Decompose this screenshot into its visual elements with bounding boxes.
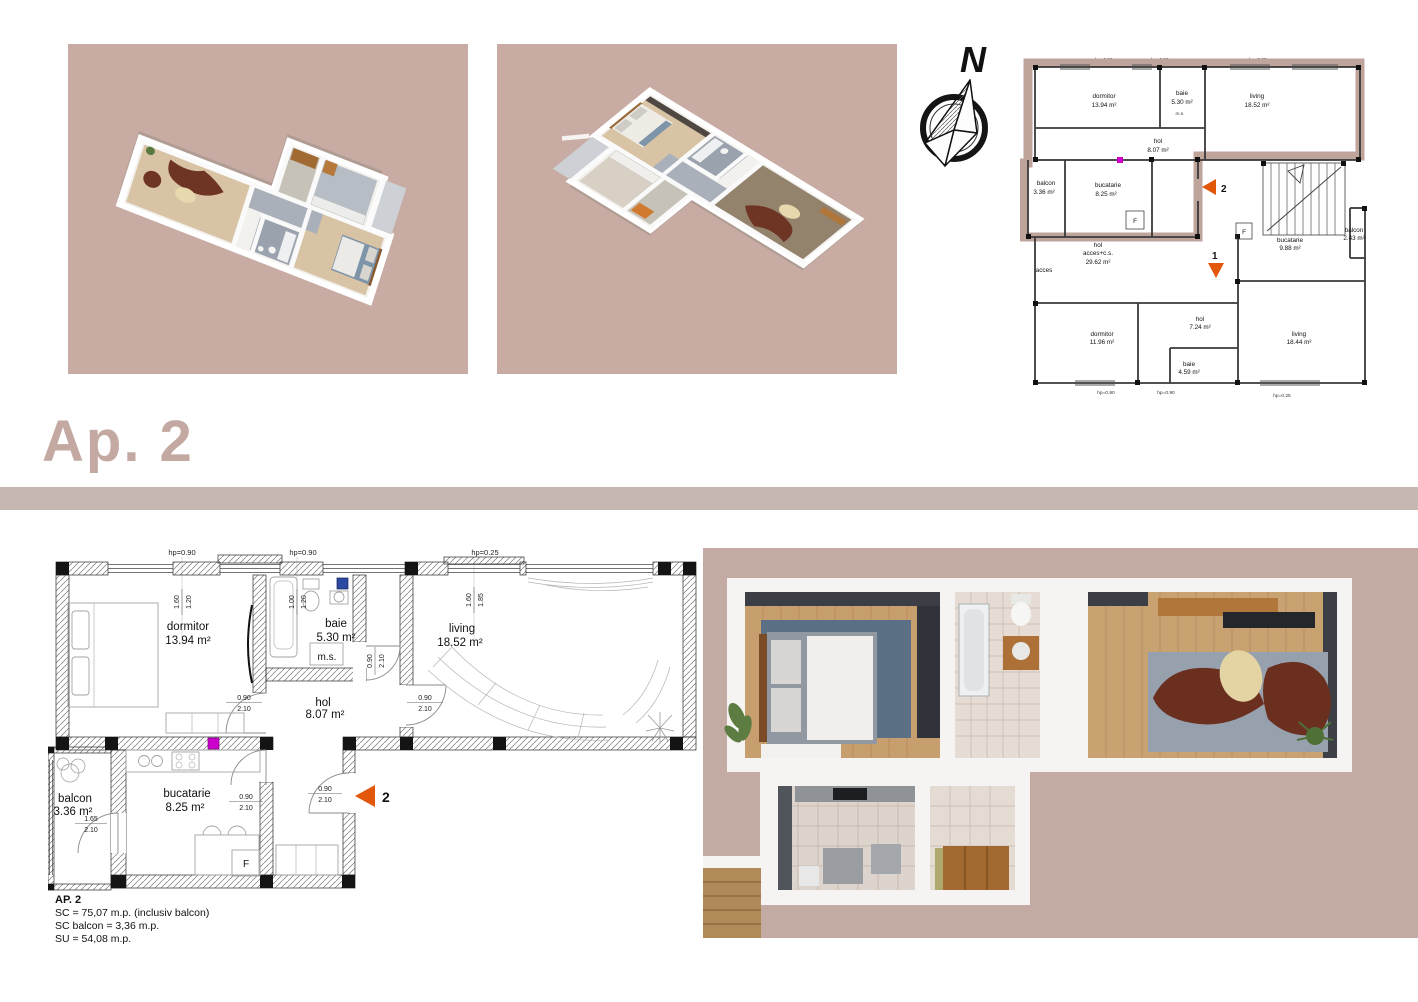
compass-north-label: N <box>960 39 987 80</box>
balcony-walls <box>48 747 111 890</box>
ap2-mini-dormitor-label: dormitor <box>1092 93 1115 100</box>
svg-text:2.10: 2.10 <box>379 654 386 668</box>
ap1-living-label: living <box>1292 331 1307 338</box>
washing-machine-label: m.s. <box>318 652 337 663</box>
svg-text:2.43 m²: 2.43 m² <box>1343 235 1364 242</box>
svg-text:8.25 m²: 8.25 m² <box>166 802 205 814</box>
bucatarie-label: bucatarie <box>163 788 210 800</box>
balcony-door-dim: 1.652.10 <box>75 816 107 834</box>
living-window-dim: 1.601.85 <box>466 587 485 613</box>
ap1-hol-label: hol <box>1196 316 1204 323</box>
ap2-mini-balcon-label: balcon <box>1037 180 1056 187</box>
render3-stove <box>833 788 867 800</box>
ap1-bucatarie-label: bucatarie <box>1277 237 1303 244</box>
magenta-marker <box>208 738 219 749</box>
svg-text:1.20: 1.20 <box>186 595 193 609</box>
ap2-mini-ms-label: m.s. <box>1175 112 1184 117</box>
ap2-mini-hol-label: hol <box>1154 138 1162 145</box>
svg-text:0.90: 0.90 <box>239 794 253 801</box>
fridge-label: F <box>243 859 249 870</box>
ap1-baie-label: baie <box>1183 361 1195 368</box>
site-hp-label: hp=0.90 <box>1157 390 1175 396</box>
svg-text:1.60: 1.60 <box>174 595 181 609</box>
ap1-entrance-arrow <box>1208 263 1224 278</box>
svg-text:2.10: 2.10 <box>318 797 332 804</box>
render3-wardrobe <box>943 846 1009 890</box>
svg-text:1.20: 1.20 <box>301 595 308 609</box>
svg-text:0.90: 0.90 <box>418 695 432 702</box>
svg-text:acces+c.s.: acces+c.s. <box>1083 250 1113 257</box>
exterior-walls <box>56 562 696 888</box>
svg-text:13.94 m²: 13.94 m² <box>1092 102 1117 109</box>
ap2-highlight-outline <box>1024 63 1360 237</box>
ap1-dormitor-label: dormitor <box>1090 331 1113 338</box>
baie-label: baie <box>325 618 347 630</box>
render3-bathroom <box>955 592 1040 758</box>
svg-text:2.10: 2.10 <box>237 706 251 713</box>
svg-text:4.59 m²: 4.59 m² <box>1178 369 1199 376</box>
render-3d-iso-1 <box>68 44 468 374</box>
ap2-mini-fridge-label: F <box>1133 218 1137 225</box>
site-plan: hp=0.90 hp=0.90 hp=0.25 dormitor 13.94 m… <box>1020 53 1392 418</box>
ap1-fridge-label: F <box>1242 229 1246 236</box>
render3-hallway <box>930 786 1015 890</box>
svg-text:18.52 m²: 18.52 m² <box>1245 102 1270 109</box>
svg-text:2.10: 2.10 <box>239 805 253 812</box>
render3-kitchen <box>778 786 915 890</box>
ap2-mini-magenta-marker <box>1117 157 1123 163</box>
detail-hp-label: hp=0.25 <box>471 548 498 557</box>
living-label: living <box>449 623 475 635</box>
entrance-arrow <box>355 785 375 807</box>
balcony-plant-icon <box>57 758 85 782</box>
stairwell <box>1263 163 1345 235</box>
detail-floor-plan: hp=0.90 hp=0.90 hp=0.25 <box>48 545 698 905</box>
dormitor-window-dim: 1.601.20 <box>174 589 193 615</box>
detail-hp-label: hp=0.90 <box>168 548 195 557</box>
svg-text:0.90: 0.90 <box>367 654 374 668</box>
site-hp-label: hp=0.25 <box>1273 393 1291 399</box>
ap1-hol-acces-label: hol <box>1094 242 1102 249</box>
summary-sc-balcon: SC balcon = 3,36 m.p. <box>55 920 209 933</box>
svg-text:7.24 m²: 7.24 m² <box>1189 324 1210 331</box>
svg-text:9.88 m²: 9.88 m² <box>1279 245 1300 252</box>
ap2-entrance-number: 2 <box>1221 184 1227 195</box>
svg-text:0.90: 0.90 <box>318 786 332 793</box>
svg-text:8.25 m²: 8.25 m² <box>1095 191 1116 198</box>
svg-text:18.52 m²: 18.52 m² <box>437 637 483 649</box>
svg-text:11.96 m²: 11.96 m² <box>1090 339 1114 346</box>
divider-band <box>0 487 1418 510</box>
blue-marker <box>337 578 348 589</box>
svg-text:3.36 m²: 3.36 m² <box>1033 189 1054 196</box>
summary-sc: SC = 75,07 m.p. (inclusiv balcon) <box>55 907 209 920</box>
dormitor-label: dormitor <box>167 621 209 633</box>
summary-heading: AP. 2 <box>55 894 209 907</box>
ap2-entrance-arrow <box>1202 179 1216 195</box>
ap1-balcon-label: balcon <box>1345 227 1364 234</box>
svg-text:1.85: 1.85 <box>478 593 485 607</box>
page-title: Ap. 2 <box>42 408 194 475</box>
svg-text:2.10: 2.10 <box>84 827 98 834</box>
render3-bedroom <box>745 592 940 758</box>
baie-door-dim: 0.902.10 <box>367 647 386 675</box>
summary-su: SU = 54,08 m.p. <box>55 933 209 946</box>
render-3d-iso-2 <box>497 44 897 374</box>
window-bay <box>444 557 524 564</box>
hol-label: hol <box>315 697 330 709</box>
compass: N <box>905 38 1005 173</box>
svg-text:1.65: 1.65 <box>84 816 98 823</box>
svg-text:18.44 m²: 18.44 m² <box>1287 339 1312 346</box>
render3-balcony <box>703 856 761 938</box>
entrance-number: 2 <box>382 789 390 805</box>
baie-window-dim: 1.001.20 <box>289 589 308 615</box>
svg-text:8.07 m²: 8.07 m² <box>1147 147 1168 154</box>
svg-text:8.07 m²: 8.07 m² <box>306 709 345 721</box>
window-bay <box>218 555 282 563</box>
svg-text:1.00: 1.00 <box>289 595 296 609</box>
svg-text:1.60: 1.60 <box>466 593 473 607</box>
svg-text:2.10: 2.10 <box>418 706 432 713</box>
plan-sheet: { "title": "Ap. 2", "compass": {"north":… <box>0 0 1418 1002</box>
svg-text:0.90: 0.90 <box>237 695 251 702</box>
ap1-entrance-number: 1 <box>1212 251 1218 262</box>
wall-junction-blocks <box>48 562 696 890</box>
svg-text:29.62 m²: 29.62 m² <box>1086 259 1111 266</box>
bucatarie-door-dim: 0.902.10 <box>229 794 263 812</box>
render-3d-topdown <box>703 548 1418 938</box>
balcon-label: balcon <box>58 793 92 805</box>
site-hp-label: hp=0.90 <box>1097 390 1115 396</box>
apartment-summary: AP. 2 SC = 75,07 m.p. (inclusiv balcon) … <box>55 894 209 946</box>
ap1-acces-label: acces <box>1036 267 1052 274</box>
render3-living <box>1088 592 1337 758</box>
detail-hp-label: hp=0.90 <box>289 548 316 557</box>
svg-text:5.30 m²: 5.30 m² <box>317 632 356 644</box>
ap2-mini-living-label: living <box>1250 93 1265 100</box>
ap2-mini-baie-label: baie <box>1176 90 1188 97</box>
svg-text:13.94 m²: 13.94 m² <box>165 635 211 647</box>
ap2-mini-bucatarie-label: bucatarie <box>1095 182 1121 189</box>
svg-text:5.30 m²: 5.30 m² <box>1171 99 1192 106</box>
